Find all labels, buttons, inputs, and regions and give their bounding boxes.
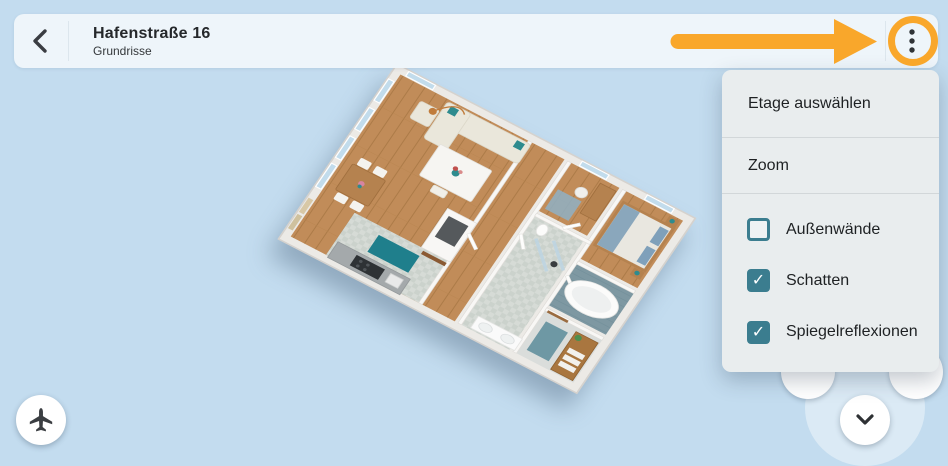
checkbox-icon [747, 218, 770, 241]
chevron-left-icon [30, 28, 52, 54]
chevron-down-icon [855, 414, 875, 426]
options-dropdown-menu: Etage auswählen Zoom Außenwände Schatten… [722, 70, 939, 372]
collapse-controls-button[interactable] [840, 395, 890, 445]
checkbox-icon [747, 269, 770, 292]
checkbox-mirror-reflections[interactable]: Spiegelreflexionen [722, 307, 939, 358]
menu-item-select-floor[interactable]: Etage auswählen [722, 70, 939, 137]
checkbox-label: Schatten [786, 272, 849, 290]
menu-item-zoom[interactable]: Zoom [722, 138, 939, 193]
airplane-icon [27, 406, 55, 434]
page-subtitle: Grundrisse [93, 44, 211, 59]
checkbox-label: Außenwände [786, 221, 880, 239]
checkbox-exterior-walls[interactable]: Außenwände [722, 204, 939, 255]
header-bar: Hafenstraße 16 Grundrisse [14, 14, 938, 68]
checkbox-icon [747, 321, 770, 344]
kebab-menu-icon [908, 28, 916, 54]
title-block: Hafenstraße 16 Grundrisse [69, 24, 211, 59]
checkbox-shadows[interactable]: Schatten [722, 255, 939, 306]
more-options-button[interactable] [886, 14, 938, 68]
back-button[interactable] [14, 14, 68, 68]
page-title: Hafenstraße 16 [93, 24, 211, 43]
checkbox-label: Spiegelreflexionen [786, 323, 918, 341]
flyover-mode-button[interactable] [16, 395, 66, 445]
